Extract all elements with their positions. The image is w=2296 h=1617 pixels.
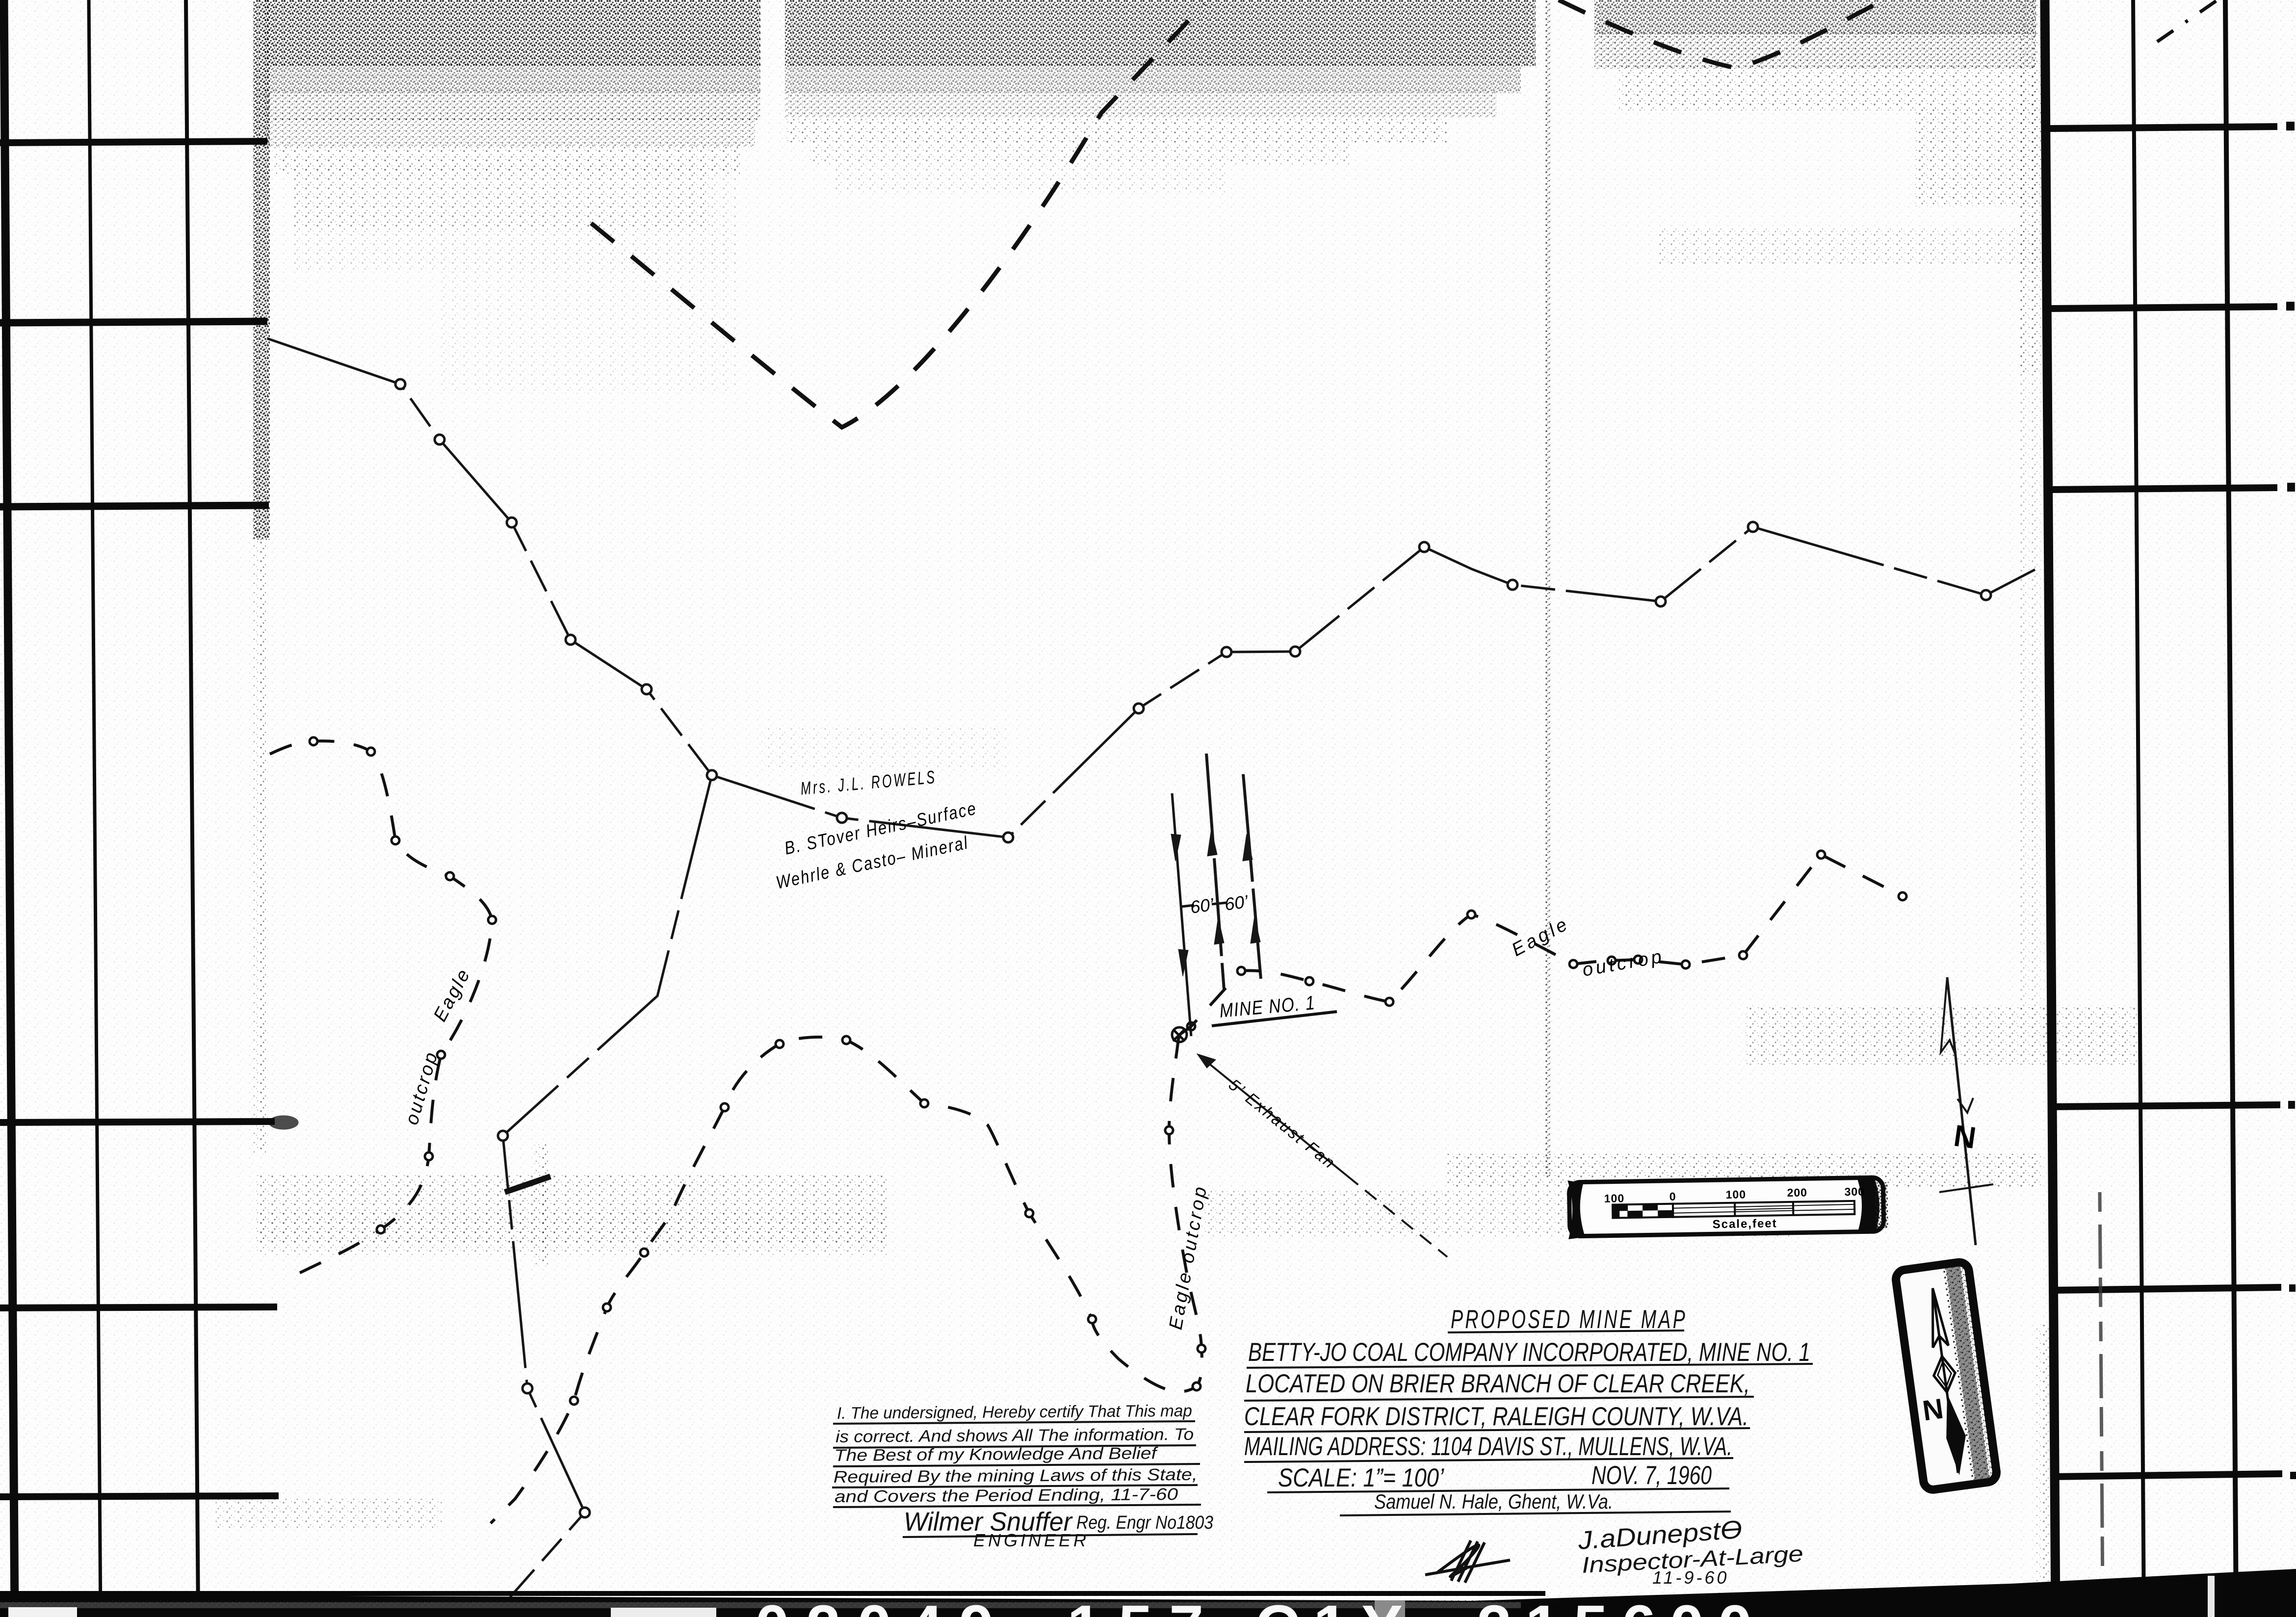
svg-text:BETTY-JO COAL COMPANY INCORPOR: BETTY-JO COAL COMPANY INCORPORATED, MINE… [1248, 1338, 1810, 1367]
svg-text:Reg. Engr No1803: Reg. Engr No1803 [1076, 1513, 1213, 1533]
svg-text:is correct. And shows All The: is correct. And shows All The informatio… [835, 1425, 1194, 1446]
svg-text:CLEAR FORK DISTRICT, RALEIGH C: CLEAR FORK DISTRICT, RALEIGH COUNTY, W.V… [1244, 1402, 1748, 1431]
svg-text:and Covers the Period Ending,: and Covers the Period Ending, 11-7-60 [835, 1485, 1178, 1506]
svg-text:157: 157 [1067, 1592, 1220, 1617]
svg-text:315600: 315600 [1477, 1592, 1766, 1617]
svg-text:300: 300 [1844, 1185, 1865, 1199]
svg-text:60’: 60’ [1223, 891, 1250, 914]
svg-text:ENGINEER: ENGINEER [973, 1530, 1089, 1550]
svg-text:100: 100 [1725, 1188, 1746, 1201]
svg-text:11-9-60: 11-9-60 [1652, 1567, 1729, 1588]
svg-text:C1Y: C1Y [1255, 1592, 1416, 1617]
svg-text:I. The undersigned, Hereby cer: I. The undersigned, Hereby certify That … [837, 1402, 1192, 1423]
svg-text:Required By the mining Laws of: Required By the mining Laws of this Stat… [834, 1465, 1198, 1487]
svg-text:PROPOSED MINE MAP: PROPOSED MINE MAP [1451, 1305, 1687, 1334]
svg-text:MAILING ADDRESS: 1104 DAVIS ST: MAILING ADDRESS: 1104 DAVIS ST., MULLENS… [1244, 1432, 1732, 1461]
svg-text:200: 200 [1787, 1186, 1807, 1199]
svg-text:N: N [1952, 1119, 1978, 1156]
svg-text:Scale,feet: Scale,feet [1712, 1217, 1777, 1231]
svg-text:60’: 60’ [1189, 894, 1215, 917]
svg-text:0: 0 [1669, 1190, 1676, 1203]
svg-text:100: 100 [1604, 1192, 1625, 1205]
svg-text:SCALE: 1”= 100’: SCALE: 1”= 100’ [1278, 1463, 1444, 1492]
svg-text:LOCATED ON BRIER BRANCH OF CLE: LOCATED ON BRIER BRANCH OF CLEAR CREEK, [1246, 1369, 1750, 1398]
svg-text:Samuel N. Hale, Ghent, W.Va.: Samuel N. Hale, Ghent, W.Va. [1374, 1490, 1613, 1513]
svg-text:NOV. 7, 1960: NOV. 7, 1960 [1592, 1461, 1712, 1490]
svg-text:N: N [1921, 1392, 1945, 1427]
svg-text:02049: 02049 [755, 1592, 1010, 1617]
